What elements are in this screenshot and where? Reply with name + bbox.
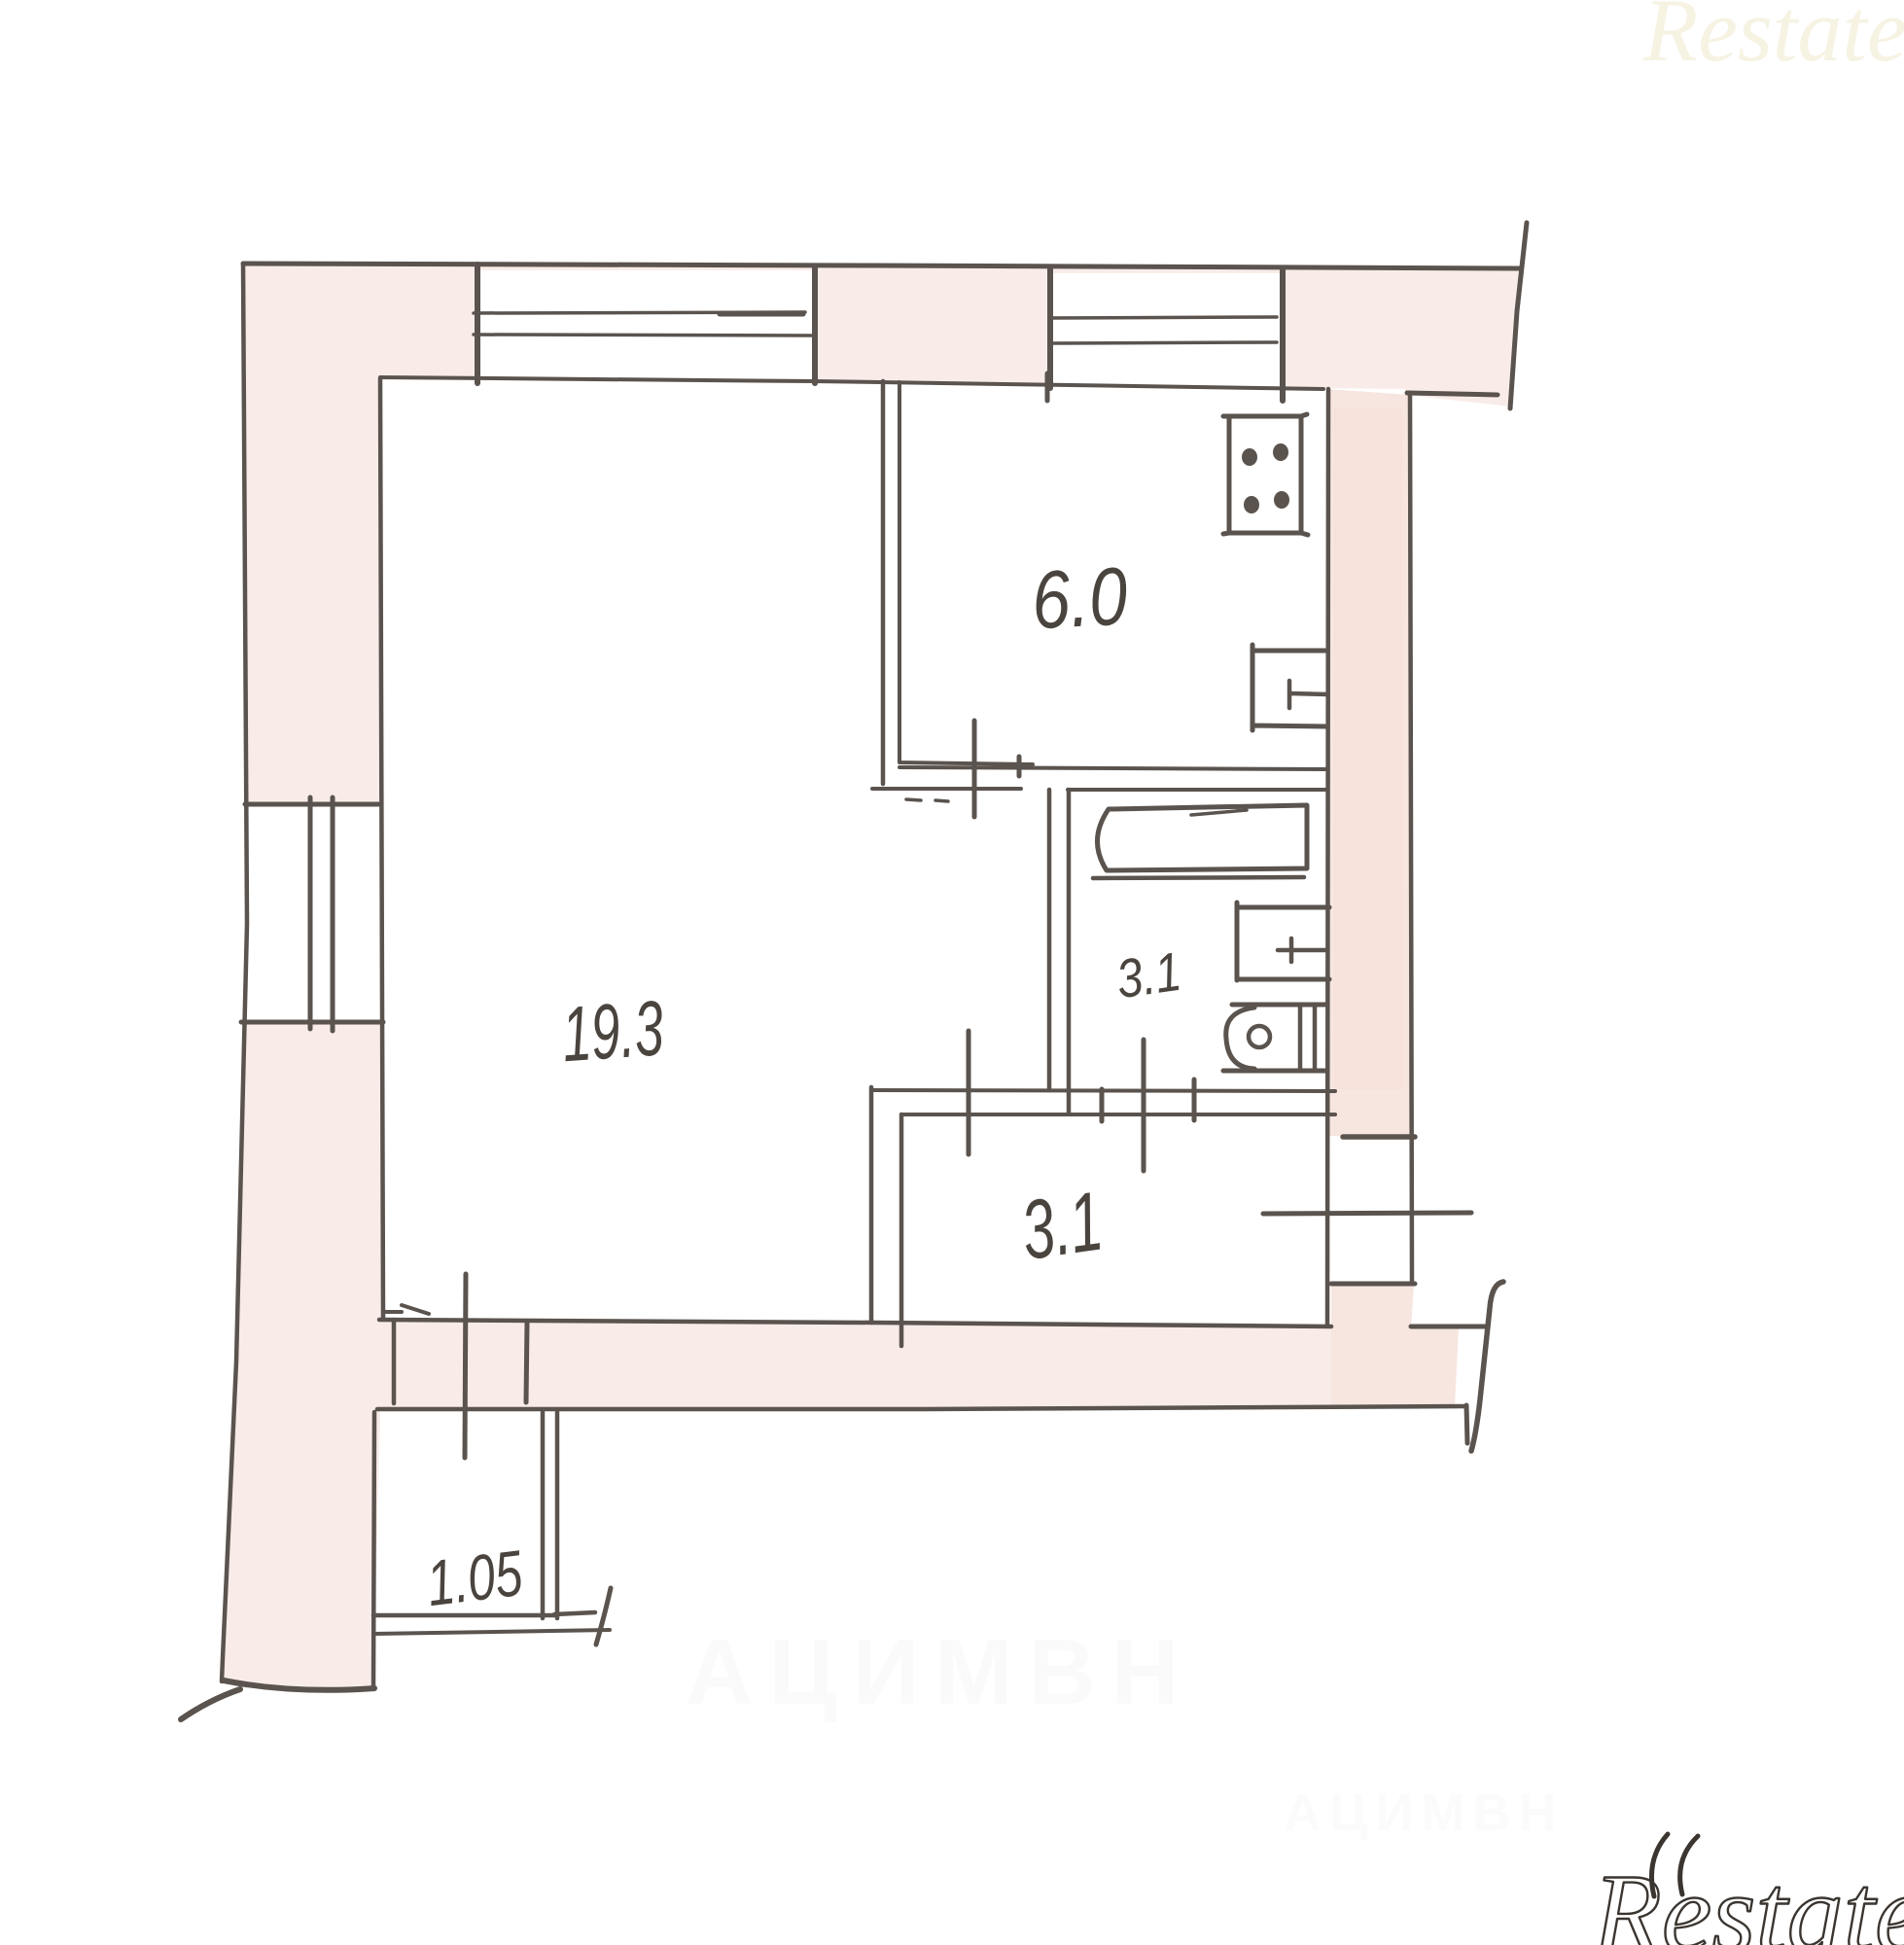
svg-text:3.1: 3.1 bbox=[1112, 940, 1184, 1010]
svg-text:Restate: Restate bbox=[1592, 1852, 1904, 1945]
svg-text:АЦИМВН: АЦИМВН bbox=[686, 1620, 1194, 1724]
svg-text:1.05: 1.05 bbox=[423, 1537, 527, 1619]
svg-text:19.3: 19.3 bbox=[559, 984, 666, 1078]
svg-text:3.1: 3.1 bbox=[1016, 1175, 1109, 1278]
svg-text:6.0: 6.0 bbox=[1030, 549, 1130, 646]
svg-text:Restate: Restate bbox=[1642, 0, 1904, 80]
svg-text:АЦИМВН: АЦИМВН bbox=[1284, 1784, 1564, 1842]
